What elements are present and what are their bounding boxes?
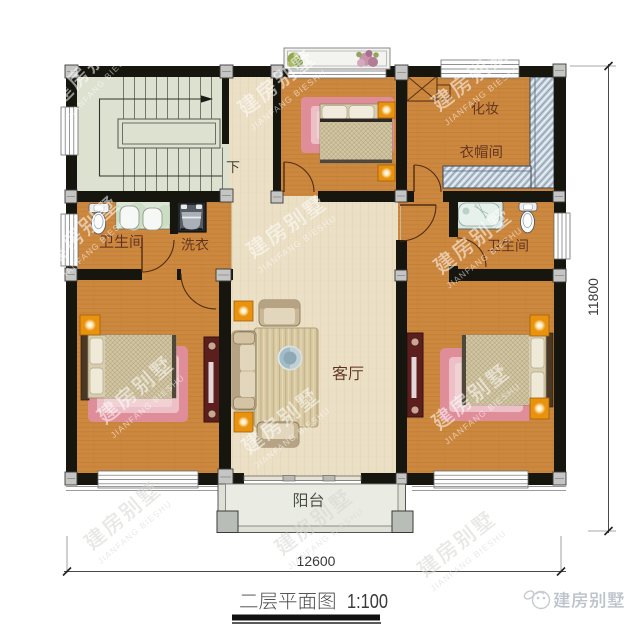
svg-text:1:100: 1:100 (347, 591, 388, 613)
svg-text:11800: 11800 (585, 278, 601, 316)
